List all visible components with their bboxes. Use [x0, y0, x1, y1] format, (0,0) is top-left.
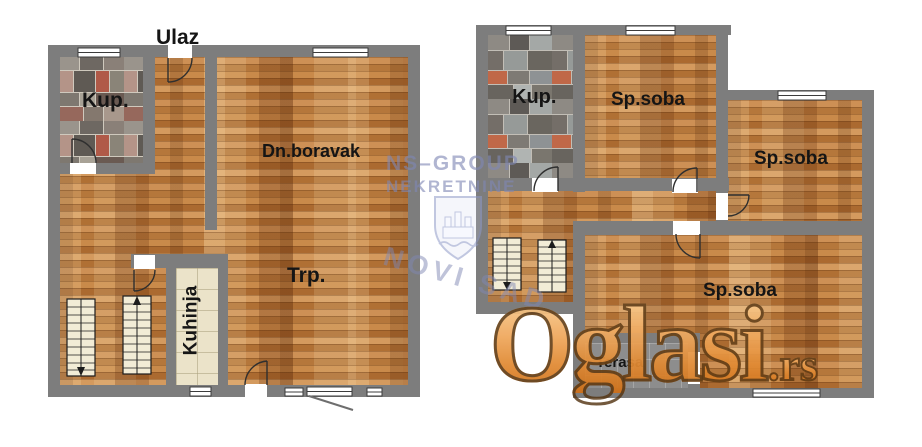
- label-bathroom-left: Kup.: [82, 90, 129, 111]
- label-dining: Trp.: [287, 265, 326, 286]
- label-bedroom-top: Sp.soba: [611, 90, 685, 109]
- entrance-label: Ulaz: [156, 27, 199, 48]
- agency-watermark-line2: NEKRETNINE: [386, 178, 517, 195]
- label-bedroom-right: Sp.soba: [754, 149, 828, 168]
- site-watermark-name: Oglasi: [490, 296, 766, 393]
- label-living-room: Dn.boravak: [262, 142, 360, 160]
- label-kitchen: Kuhinja: [182, 276, 201, 366]
- site-watermark-tld: .rs: [768, 344, 818, 385]
- site-watermark: Oglasi .rs: [490, 296, 818, 393]
- floorplan-image: Ulaz Kup. Dn.boravak Trp. Kuhinja: [0, 0, 922, 447]
- agency-shield-icon: [428, 195, 488, 261]
- label-bathroom-right: Kup.: [512, 87, 556, 107]
- agency-watermark-line1: NS–GROUP: [386, 153, 520, 174]
- balcony-door-swing: [309, 396, 353, 410]
